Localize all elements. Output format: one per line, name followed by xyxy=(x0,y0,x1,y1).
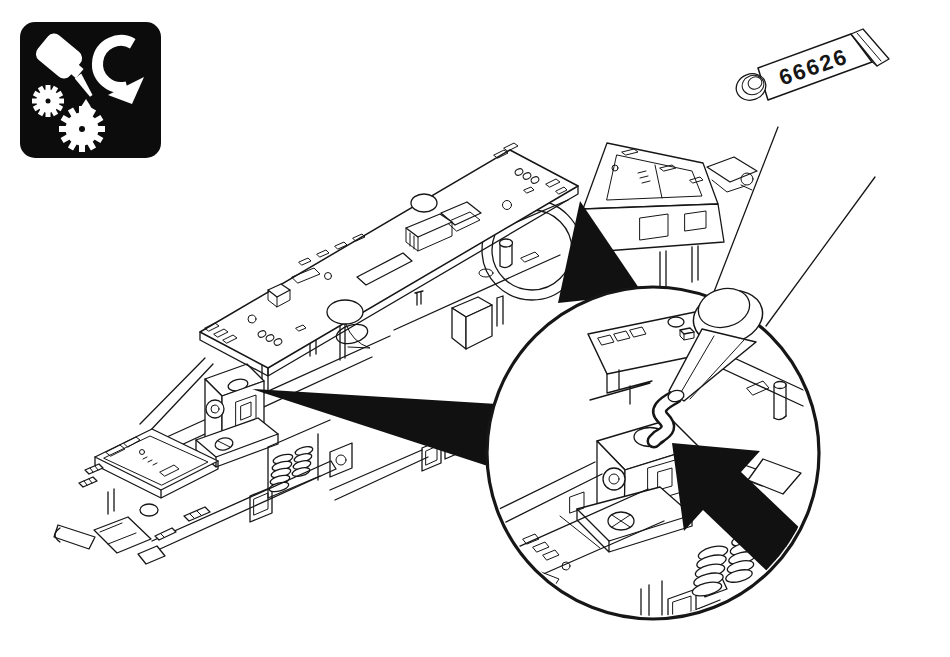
gearbox-tower xyxy=(196,364,278,467)
grease-tube: 66626 xyxy=(732,29,889,104)
front-bogie xyxy=(54,429,336,564)
instruction-figure: 66626 xyxy=(0,0,950,657)
grease-drop xyxy=(654,397,675,441)
board-notch xyxy=(327,300,363,324)
diagram-canvas: 66626 xyxy=(0,0,950,657)
rear-coupler xyxy=(707,157,757,192)
lubrication-icon xyxy=(20,22,161,158)
front-coupler xyxy=(54,517,165,564)
board-notch xyxy=(411,194,437,212)
